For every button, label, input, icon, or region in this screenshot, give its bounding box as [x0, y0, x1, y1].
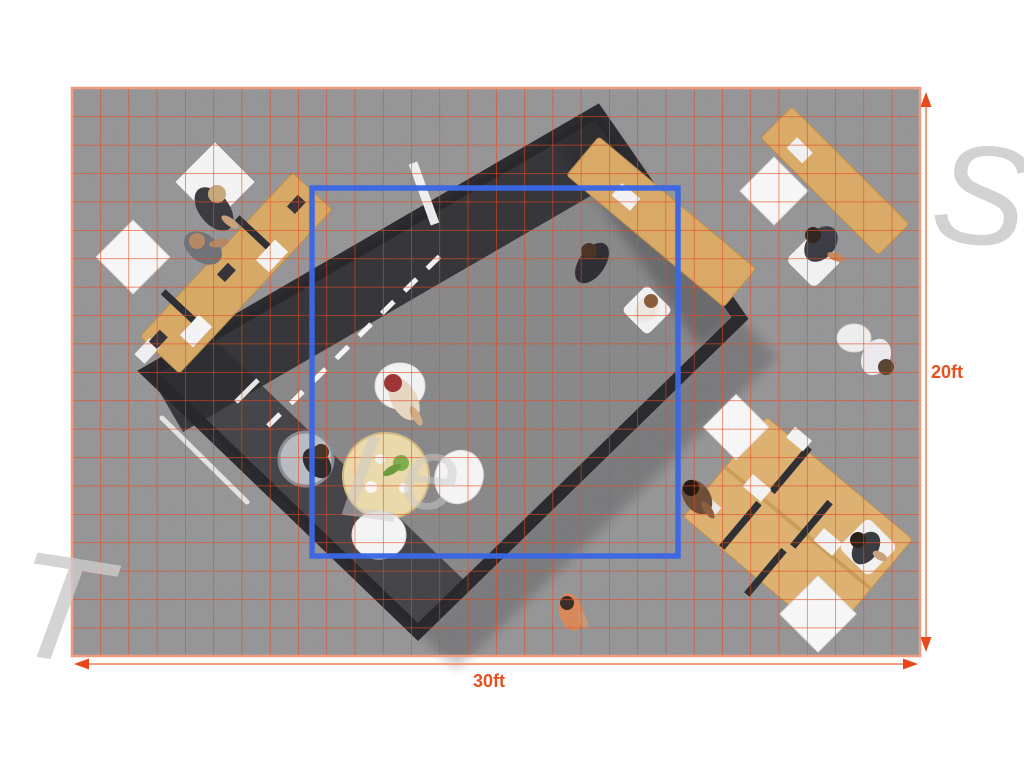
floorplan-render: TLeS30ft20ft [0, 0, 1024, 768]
dimension-arrow-right [903, 659, 918, 670]
booth-floorplan-page: TLeS30ft20ft [0, 0, 1024, 768]
watermark-letter-s: S [924, 111, 1024, 280]
dimension-arrow-top [921, 92, 932, 107]
dimension-label-height: 20ft [931, 362, 963, 382]
dimension-arrow-bottom [921, 637, 932, 652]
dimension-label-width: 30ft [473, 671, 505, 691]
grid-overlay [72, 88, 920, 656]
